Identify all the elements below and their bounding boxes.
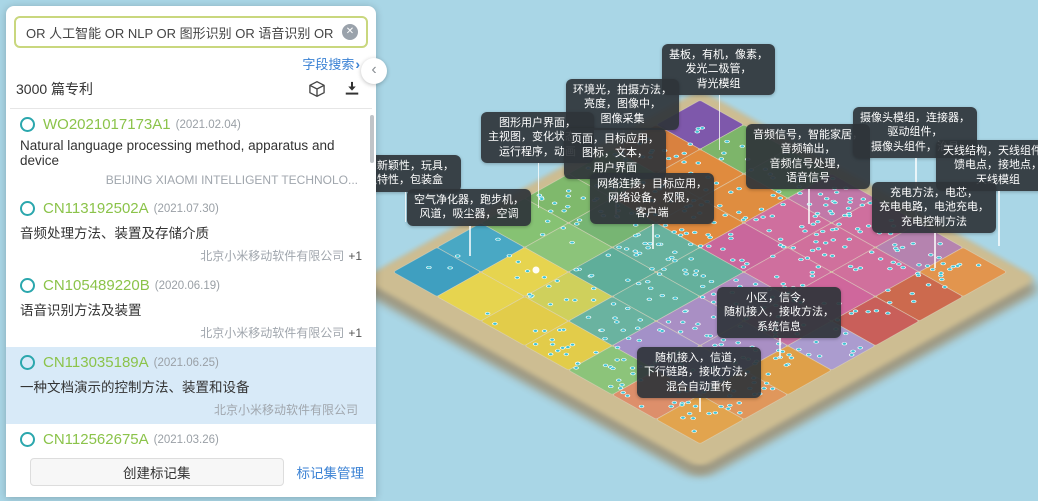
map-label-cell-signaling[interactable]: 小区，信令， 随机接入，接收方法， 系统信息 <box>717 287 841 338</box>
map-label-line: 小区，信令， <box>724 291 834 305</box>
map-label-line: 天线结构，天线组件， <box>943 144 1038 158</box>
map-label-line: 混合自动重传 <box>644 380 754 394</box>
map-label-air-purifier[interactable]: 空气净化器，跑步机， 风道，吸尘器，空调 <box>407 189 531 226</box>
patent-title: 语音识别方法及装置 <box>20 299 362 319</box>
map-anchor-dot <box>533 267 540 274</box>
patent-date: (2021.07.30) <box>154 203 219 215</box>
map-label-line: 发光二极管， <box>669 62 768 76</box>
patent-id-link[interactable]: CN113192502A <box>43 200 149 217</box>
patent-list-item[interactable]: WO2021017173A1 (2021.02.04) Natural lang… <box>6 109 376 193</box>
3d-cube-icon[interactable] <box>307 79 327 99</box>
leader-line <box>405 192 407 222</box>
result-count-row: 3000 篇专利 <box>6 73 376 108</box>
map-label-line: 环境光，拍摄方法， <box>573 83 672 97</box>
panel-footer: 创建标记集 标记集管理 <box>6 450 376 497</box>
map-label-line: 系统信息 <box>724 320 834 334</box>
patent-date: (2020.06.19) <box>155 280 220 292</box>
map-label-line: 音频信号处理， <box>753 157 863 171</box>
patent-title: Natural language processing method, appa… <box>20 138 362 168</box>
leader-line <box>652 224 654 249</box>
map-label-line: 下行链路，接收方法， <box>644 365 754 379</box>
map-label-line: 音频信号，智能家居， <box>753 128 863 142</box>
patent-id-link[interactable]: WO2021017173A1 <box>43 116 171 133</box>
map-label-line: 随机接入，信道， <box>644 351 754 365</box>
map-label-line: 客户端 <box>597 206 707 220</box>
leader-line <box>469 226 471 256</box>
map-label-line: 网络连接，目标应用， <box>597 177 707 191</box>
leader-line <box>998 191 1000 246</box>
map-label-line: 空气净化器，跑步机， <box>414 193 524 207</box>
chevron-right-icon: › <box>355 56 360 72</box>
map-label-line: 页面，目标应用， <box>571 132 659 146</box>
map-label-line: 网络设备，权限， <box>597 191 707 205</box>
map-label-network-connection[interactable]: 网络连接，目标应用， 网络设备，权限， 客户端 <box>590 173 714 224</box>
select-ring-icon[interactable] <box>20 117 35 132</box>
map-label-audio-signal[interactable]: 音频信号，智能家居， 音频输出， 音频信号处理， 语音信号 <box>746 124 870 189</box>
leader-line <box>538 163 540 208</box>
create-tagset-button[interactable]: 创建标记集 <box>30 458 284 486</box>
leader-line <box>699 398 701 412</box>
map-label-line: 亮度，图像中， <box>573 97 672 111</box>
search-input[interactable] <box>24 24 338 41</box>
field-search-link[interactable]: 字段搜索› <box>6 48 376 73</box>
patent-assignee: 北京小米移动软件有限公司+1 <box>20 247 362 264</box>
map-label-line: 风道，吸尘器，空调 <box>414 207 524 221</box>
search-box[interactable]: ✕ <box>14 16 368 48</box>
toolbar-icons <box>307 79 362 99</box>
patent-assignee: 北京小米移动软件有限公司 <box>20 401 362 418</box>
result-count: 3000 篇专利 <box>16 79 93 99</box>
leader-line <box>808 189 810 224</box>
select-ring-icon[interactable] <box>20 278 35 293</box>
map-label-line: 充电方法，电芯， <box>879 186 989 200</box>
collapse-panel-button[interactable]: ‹ <box>361 58 387 84</box>
select-ring-icon[interactable] <box>20 201 35 216</box>
patent-title: 一种文档演示的控制方法、装置和设备 <box>20 376 362 396</box>
patent-assignee: 北京小米移动软件有限公司+1 <box>20 324 362 341</box>
map-label-line: 基板，有机，像素， <box>669 48 768 62</box>
map-label-line: 充电控制方法 <box>879 215 989 229</box>
select-ring-icon[interactable] <box>20 432 35 447</box>
map-label-line: 充电电路，电池充电， <box>879 200 989 214</box>
patent-list-item[interactable]: CN113192502A (2021.07.30) 音频处理方法、装置及存储介质… <box>6 193 376 270</box>
leader-line <box>779 338 781 358</box>
patent-assignee: BEIJING XIAOMI INTELLIGENT TECHNOLO... <box>20 173 362 187</box>
search-results-panel: ✕ 字段搜索› 3000 篇专利 WO2021017173A1 (2021.02… <box>6 6 376 497</box>
patent-list: WO2021017173A1 (2021.02.04) Natural lang… <box>6 109 376 501</box>
patent-date: (2021.02.04) <box>176 119 241 131</box>
assignee-extra-count: +1 <box>348 326 362 340</box>
map-label-line: 语音信号 <box>753 171 863 185</box>
chevron-left-icon: ‹ <box>371 62 376 78</box>
map-label-line: 图标，文本， <box>571 146 659 160</box>
field-search-label: 字段搜索 <box>302 57 354 72</box>
map-label-line: 背光模组 <box>669 77 768 91</box>
clear-search-icon[interactable]: ✕ <box>342 24 358 40</box>
map-label-random-access[interactable]: 随机接入，信道， 下行链路，接收方法， 混合自动重传 <box>637 347 761 398</box>
map-label-line: 摄像头模组，连接器， <box>860 111 970 125</box>
patent-id-link[interactable]: CN105489220B <box>43 277 150 294</box>
select-ring-icon[interactable] <box>20 355 35 370</box>
patent-date: (2021.06.25) <box>154 357 219 369</box>
patent-date: (2021.03.26) <box>154 434 219 446</box>
download-icon[interactable] <box>342 79 362 99</box>
leader-line <box>934 233 936 268</box>
map-label-line: 随机接入，接收方法， <box>724 305 834 319</box>
patent-title: 音频处理方法、装置及存储介质 <box>20 222 362 242</box>
leader-line <box>719 95 721 150</box>
assignee-extra-count: +1 <box>348 249 362 263</box>
map-label-line: 音频输出， <box>753 142 863 156</box>
manage-tagset-link[interactable]: 标记集管理 <box>297 462 365 482</box>
map-label-charging[interactable]: 充电方法，电芯， 充电电路，电池充电， 充电控制方法 <box>872 182 996 233</box>
patent-list-item[interactable]: CN105489220B (2020.06.19) 语音识别方法及装置 北京小米… <box>6 270 376 347</box>
patent-id-link[interactable]: CN113035189A <box>43 354 149 371</box>
patent-id-link[interactable]: CN112562675A <box>43 431 149 448</box>
map-label-line: 驱动组件， <box>860 125 970 139</box>
map-label-line: 馈电点，接地点， <box>943 158 1038 172</box>
map-label-page-app[interactable]: 页面，目标应用， 图标，文本， 用户界面 <box>564 128 666 179</box>
patent-list-item-selected[interactable]: CN113035189A (2021.06.25) 一种文档演示的控制方法、装置… <box>6 347 376 424</box>
scrollbar-thumb[interactable] <box>370 115 374 163</box>
